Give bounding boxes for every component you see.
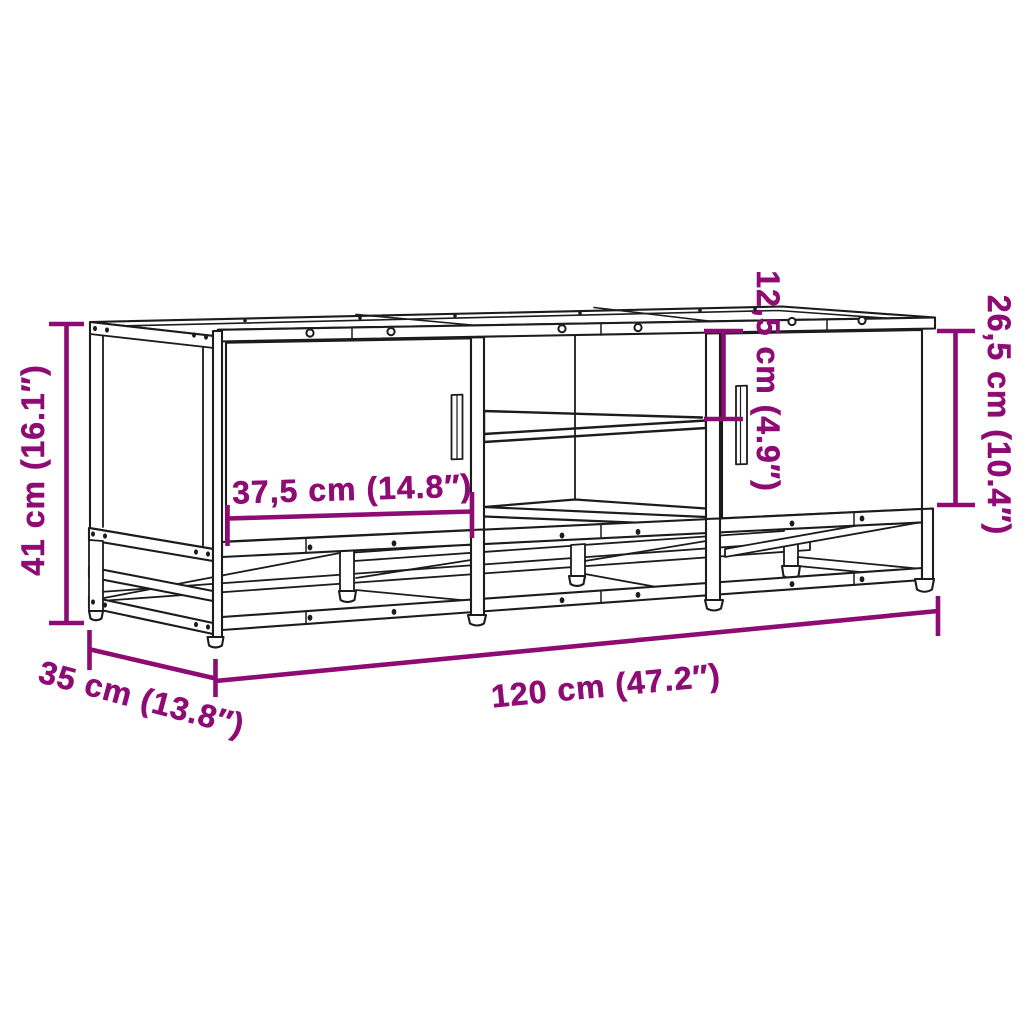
- svg-text:41 cm (16.1″): 41 cm (16.1″): [15, 364, 51, 576]
- svg-text:12,5 cm (4.9″): 12,5 cm (4.9″): [750, 270, 786, 491]
- svg-text:26,5 cm (10.4″): 26,5 cm (10.4″): [981, 295, 1017, 535]
- svg-text:37,5 cm (14.8″): 37,5 cm (14.8″): [232, 467, 473, 510]
